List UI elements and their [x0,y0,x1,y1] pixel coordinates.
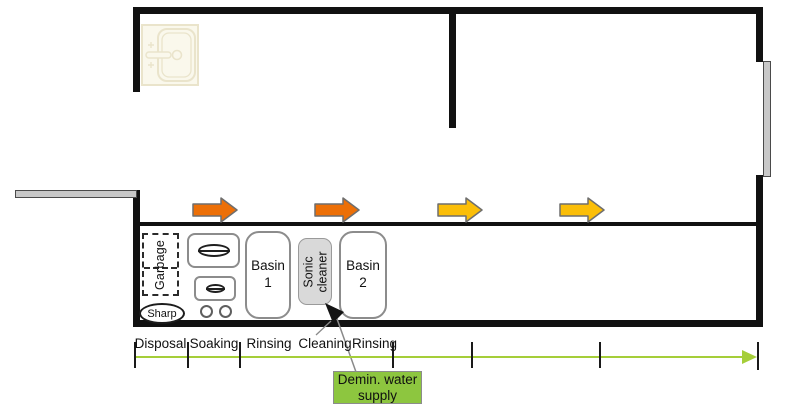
drain-icon [198,244,230,257]
wall-left-upper [133,7,140,92]
timeline-tick [471,342,473,368]
basin-2-label: Basin 2 [343,258,383,292]
basin-1-label: Basin 1 [248,258,288,292]
flow-arrow-yellow-2 [559,197,605,223]
stage-label-soaking: Soaking [188,336,240,352]
basin-1: Basin 1 [245,231,291,319]
drain-icon [206,284,225,293]
stage-label-cleaning: Cleaning [297,336,353,352]
wall-room-divider [449,13,456,128]
timeline-tick [599,342,601,368]
wall-left-lower [133,190,140,327]
tap-knob-left [200,305,213,318]
wall-right-upper [756,7,763,62]
timeline-tick [757,342,759,370]
flow-arrow-orange-2 [314,197,360,223]
wall-right-lower [756,175,763,327]
timeline-arrowhead-icon [742,350,757,364]
demin-water-supply-box: Demin. water supply [333,371,422,404]
right-door [763,61,771,177]
process-timeline [135,356,751,358]
left-door [15,190,137,198]
cleaning-workflow-floorplan: Garbage Sharp Basin 1 Sonic cleaner Basi… [0,0,800,419]
stage-label-rinsing-2: Rinsing [352,336,394,352]
soaking-sink [187,233,240,268]
sink-icon [141,24,199,86]
flow-arrow-orange-1 [192,197,238,223]
flow-arrow-yellow-1 [437,197,483,223]
rinsing-sink [194,276,236,301]
sharp-container: Sharp [139,303,185,324]
wall-top [133,7,763,14]
wall-bottom [133,320,763,327]
sharp-label: Sharp [147,308,176,320]
stage-label-disposal: Disposal [133,336,188,352]
sonic-cleaner-label: Sonic cleaner [301,251,329,292]
demin-water-supply-label: Demin. water supply [336,372,420,403]
tap-knob-right [219,305,232,318]
garbage-bin: Garbage [142,233,179,296]
stage-label-rinsing-1: Rinsing [242,336,296,352]
garbage-label: Garbage [154,239,168,289]
